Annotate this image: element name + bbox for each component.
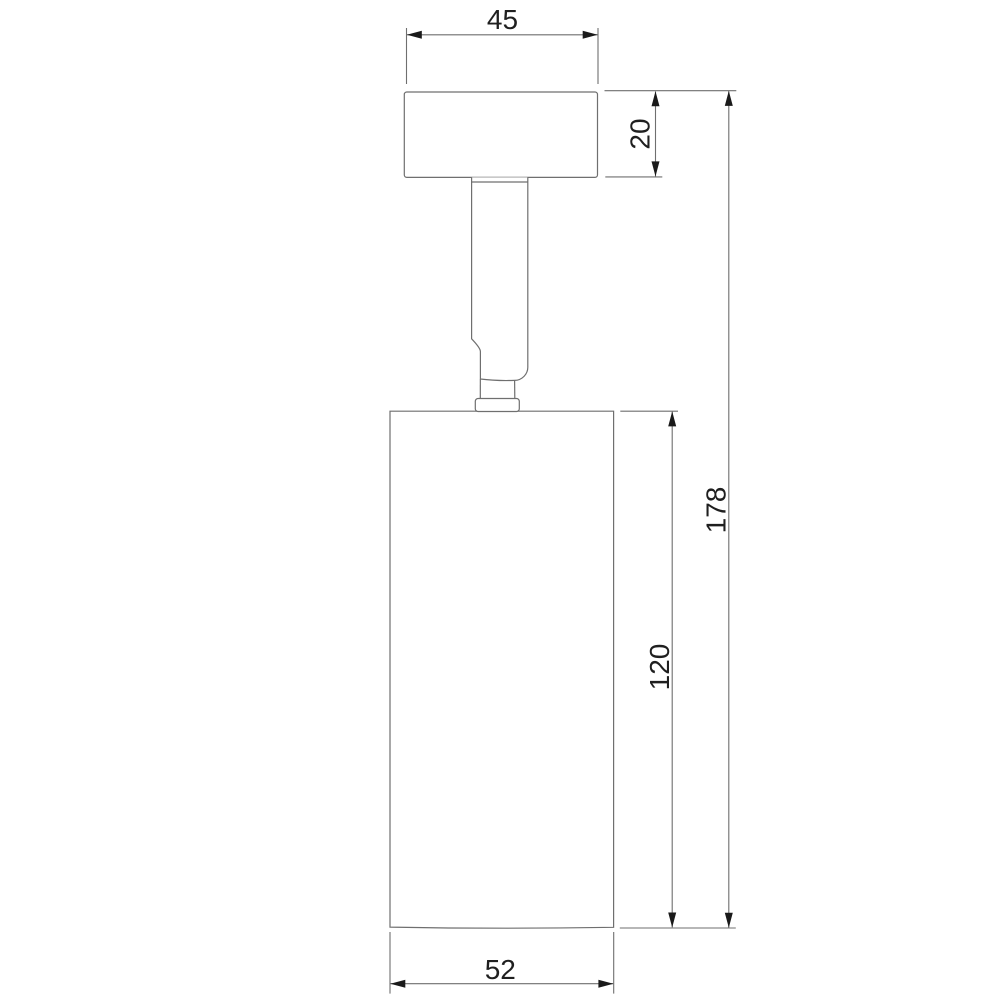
svg-text:45: 45 <box>487 4 518 35</box>
svg-text:120: 120 <box>644 644 675 691</box>
svg-text:178: 178 <box>701 487 732 534</box>
svg-text:20: 20 <box>625 118 656 149</box>
svg-text:52: 52 <box>485 954 516 985</box>
